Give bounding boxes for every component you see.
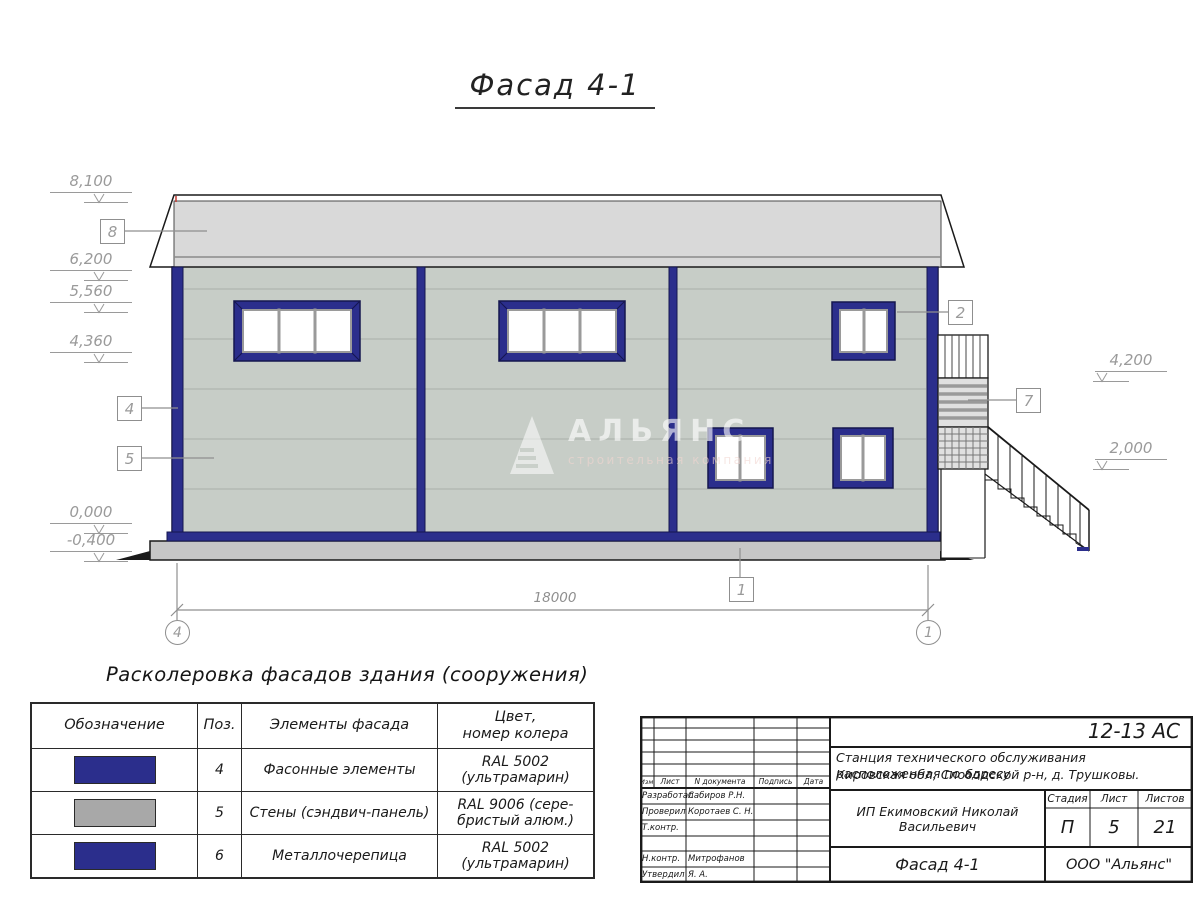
elevation-mark: 2,000	[1095, 439, 1167, 471]
callout-wall: 5	[117, 446, 142, 471]
sheets-value: 21	[1138, 808, 1192, 847]
legend-table: Обозначение Поз. Элементы фасада Цвет, н…	[30, 702, 595, 879]
callout-window: 2	[948, 300, 973, 325]
stair-balusters	[998, 436, 1080, 545]
legend-pos: 6	[198, 835, 242, 879]
elevation-value: 0,000	[50, 503, 132, 524]
elevation-value: -0,400	[50, 531, 132, 552]
rev-col-doc: N документа	[686, 776, 754, 788]
legend-col-element: Элементы фасада	[242, 703, 438, 749]
elevation-flag-icon	[84, 193, 130, 204]
elevation-value: 4,200	[1095, 351, 1167, 372]
stage-value: П	[1045, 808, 1090, 847]
legend-col-designation: Обозначение	[31, 703, 198, 749]
sheets-label: Листов	[1138, 790, 1192, 808]
window-3pane	[499, 301, 625, 361]
elevation-flag-icon	[84, 552, 130, 563]
legend-ral: RAL 9006 (сере- бристый алюм.)	[438, 792, 595, 835]
elevation-flag-icon	[84, 303, 130, 314]
legend-header-row: Обозначение Поз. Элементы фасада Цвет, н…	[31, 703, 594, 749]
elevation-mark: -0,400	[50, 531, 132, 563]
elevation-mark: 5,560	[50, 282, 132, 314]
legend-col-pos: Поз.	[198, 703, 242, 749]
legend-ral: RAL 5002 (ультрамарин)	[438, 835, 595, 879]
sheet-label: Лист	[1090, 790, 1138, 808]
window-2pane	[832, 302, 895, 360]
drawing-sheet: АЛЬЯНС строительная компания Фасад 4-1 8…	[0, 0, 1200, 900]
legend-row: 6 Металлочерепица RAL 5002 (ультрамарин)	[31, 835, 594, 879]
rev-col-date: Дата	[797, 776, 830, 788]
legend-col-color: Цвет, номер колера	[438, 703, 595, 749]
legend-row: 4 Фасонные элементы RAL 5002 (ультрамари…	[31, 749, 594, 792]
elevation-value: 8,100	[50, 172, 132, 193]
color-swatch	[74, 842, 156, 870]
elevation-mark: 8,100	[50, 172, 132, 204]
legend-row: 5 Стены (сэндвич-панель) RAL 9006 (сере-…	[31, 792, 594, 835]
callout-stair: 7	[1016, 388, 1041, 413]
color-swatch	[74, 756, 156, 784]
rev-col-sign: Подпись	[754, 776, 797, 788]
elevation-value: 4,360	[50, 332, 132, 353]
color-swatch	[74, 799, 156, 827]
stair-treads	[985, 480, 1089, 551]
roof	[150, 195, 964, 267]
project-description-line2: Кировская обл, Слободской р-н, д. Трушко…	[836, 767, 1190, 783]
stair-post	[941, 469, 985, 558]
document-code: 12-13 АС	[840, 718, 1180, 745]
plinth	[116, 532, 974, 560]
axis-bubble-left: 4	[165, 620, 190, 645]
window-2pane	[833, 428, 893, 488]
drawing-name: Фасад 4-1	[830, 847, 1045, 883]
stair	[938, 335, 1089, 558]
callout-roof: 8	[100, 219, 125, 244]
role-label: Утвердил	[642, 867, 686, 883]
elevation-flag-icon	[84, 271, 130, 282]
callout-plinth: 1	[729, 577, 754, 602]
role-name: Коротаев С. Н.	[688, 804, 754, 820]
company-name: ООО "Альянс"	[1045, 847, 1193, 883]
axis-bubble-right: 1	[916, 620, 941, 645]
legend-pos: 4	[198, 749, 242, 792]
legend-pos: 5	[198, 792, 242, 835]
sheet-value: 5	[1090, 808, 1138, 847]
rev-col-izm: Изм.	[640, 776, 654, 788]
role-name: Сабиров Р.Н.	[688, 788, 754, 804]
stage-label: Стадия	[1045, 790, 1090, 808]
title-block: 12-13 АС Станция технического обслуживан…	[640, 716, 1193, 883]
elevation-mark: 4,200	[1095, 351, 1167, 383]
elevation-mark: 6,200	[50, 250, 132, 282]
role-name	[688, 867, 754, 883]
role-label: Т.контр.	[642, 820, 686, 836]
elevation-flag-icon	[1093, 460, 1133, 471]
legend-element: Фасонные элементы	[242, 749, 438, 792]
client-name: ИП Екимовский Николай Васильевич	[831, 792, 1044, 845]
role-label: Н.контр.	[642, 851, 686, 867]
window-3pane	[234, 301, 360, 361]
rev-col-list: Лист	[654, 776, 686, 788]
role-label: Проверил	[642, 804, 686, 820]
elevation-flag-icon	[84, 353, 130, 364]
elevation-flag-icon	[1093, 372, 1133, 383]
callout-corner-trim: 4	[117, 396, 142, 421]
window-2pane	[708, 428, 773, 488]
elevation-value: 5,560	[50, 282, 132, 303]
elevation-value: 6,200	[50, 250, 132, 271]
legend-ral: RAL 5002 (ультрамарин)	[438, 749, 595, 792]
page-title: Фасад 4-1	[455, 68, 655, 109]
legend-element: Стены (сэндвич-панель)	[242, 792, 438, 835]
elevation-mark: 4,360	[50, 332, 132, 364]
role-label: Разработал	[642, 788, 686, 804]
role-name	[688, 820, 754, 836]
legend-heading: Расколеровка фасадов здания (сооружения)	[106, 663, 588, 686]
dimension-value: 18000	[520, 590, 590, 606]
legend-element: Металлочерепица	[242, 835, 438, 879]
elevation-value: 2,000	[1095, 439, 1167, 460]
role-name: Митрофанов Я. А.	[688, 851, 754, 867]
